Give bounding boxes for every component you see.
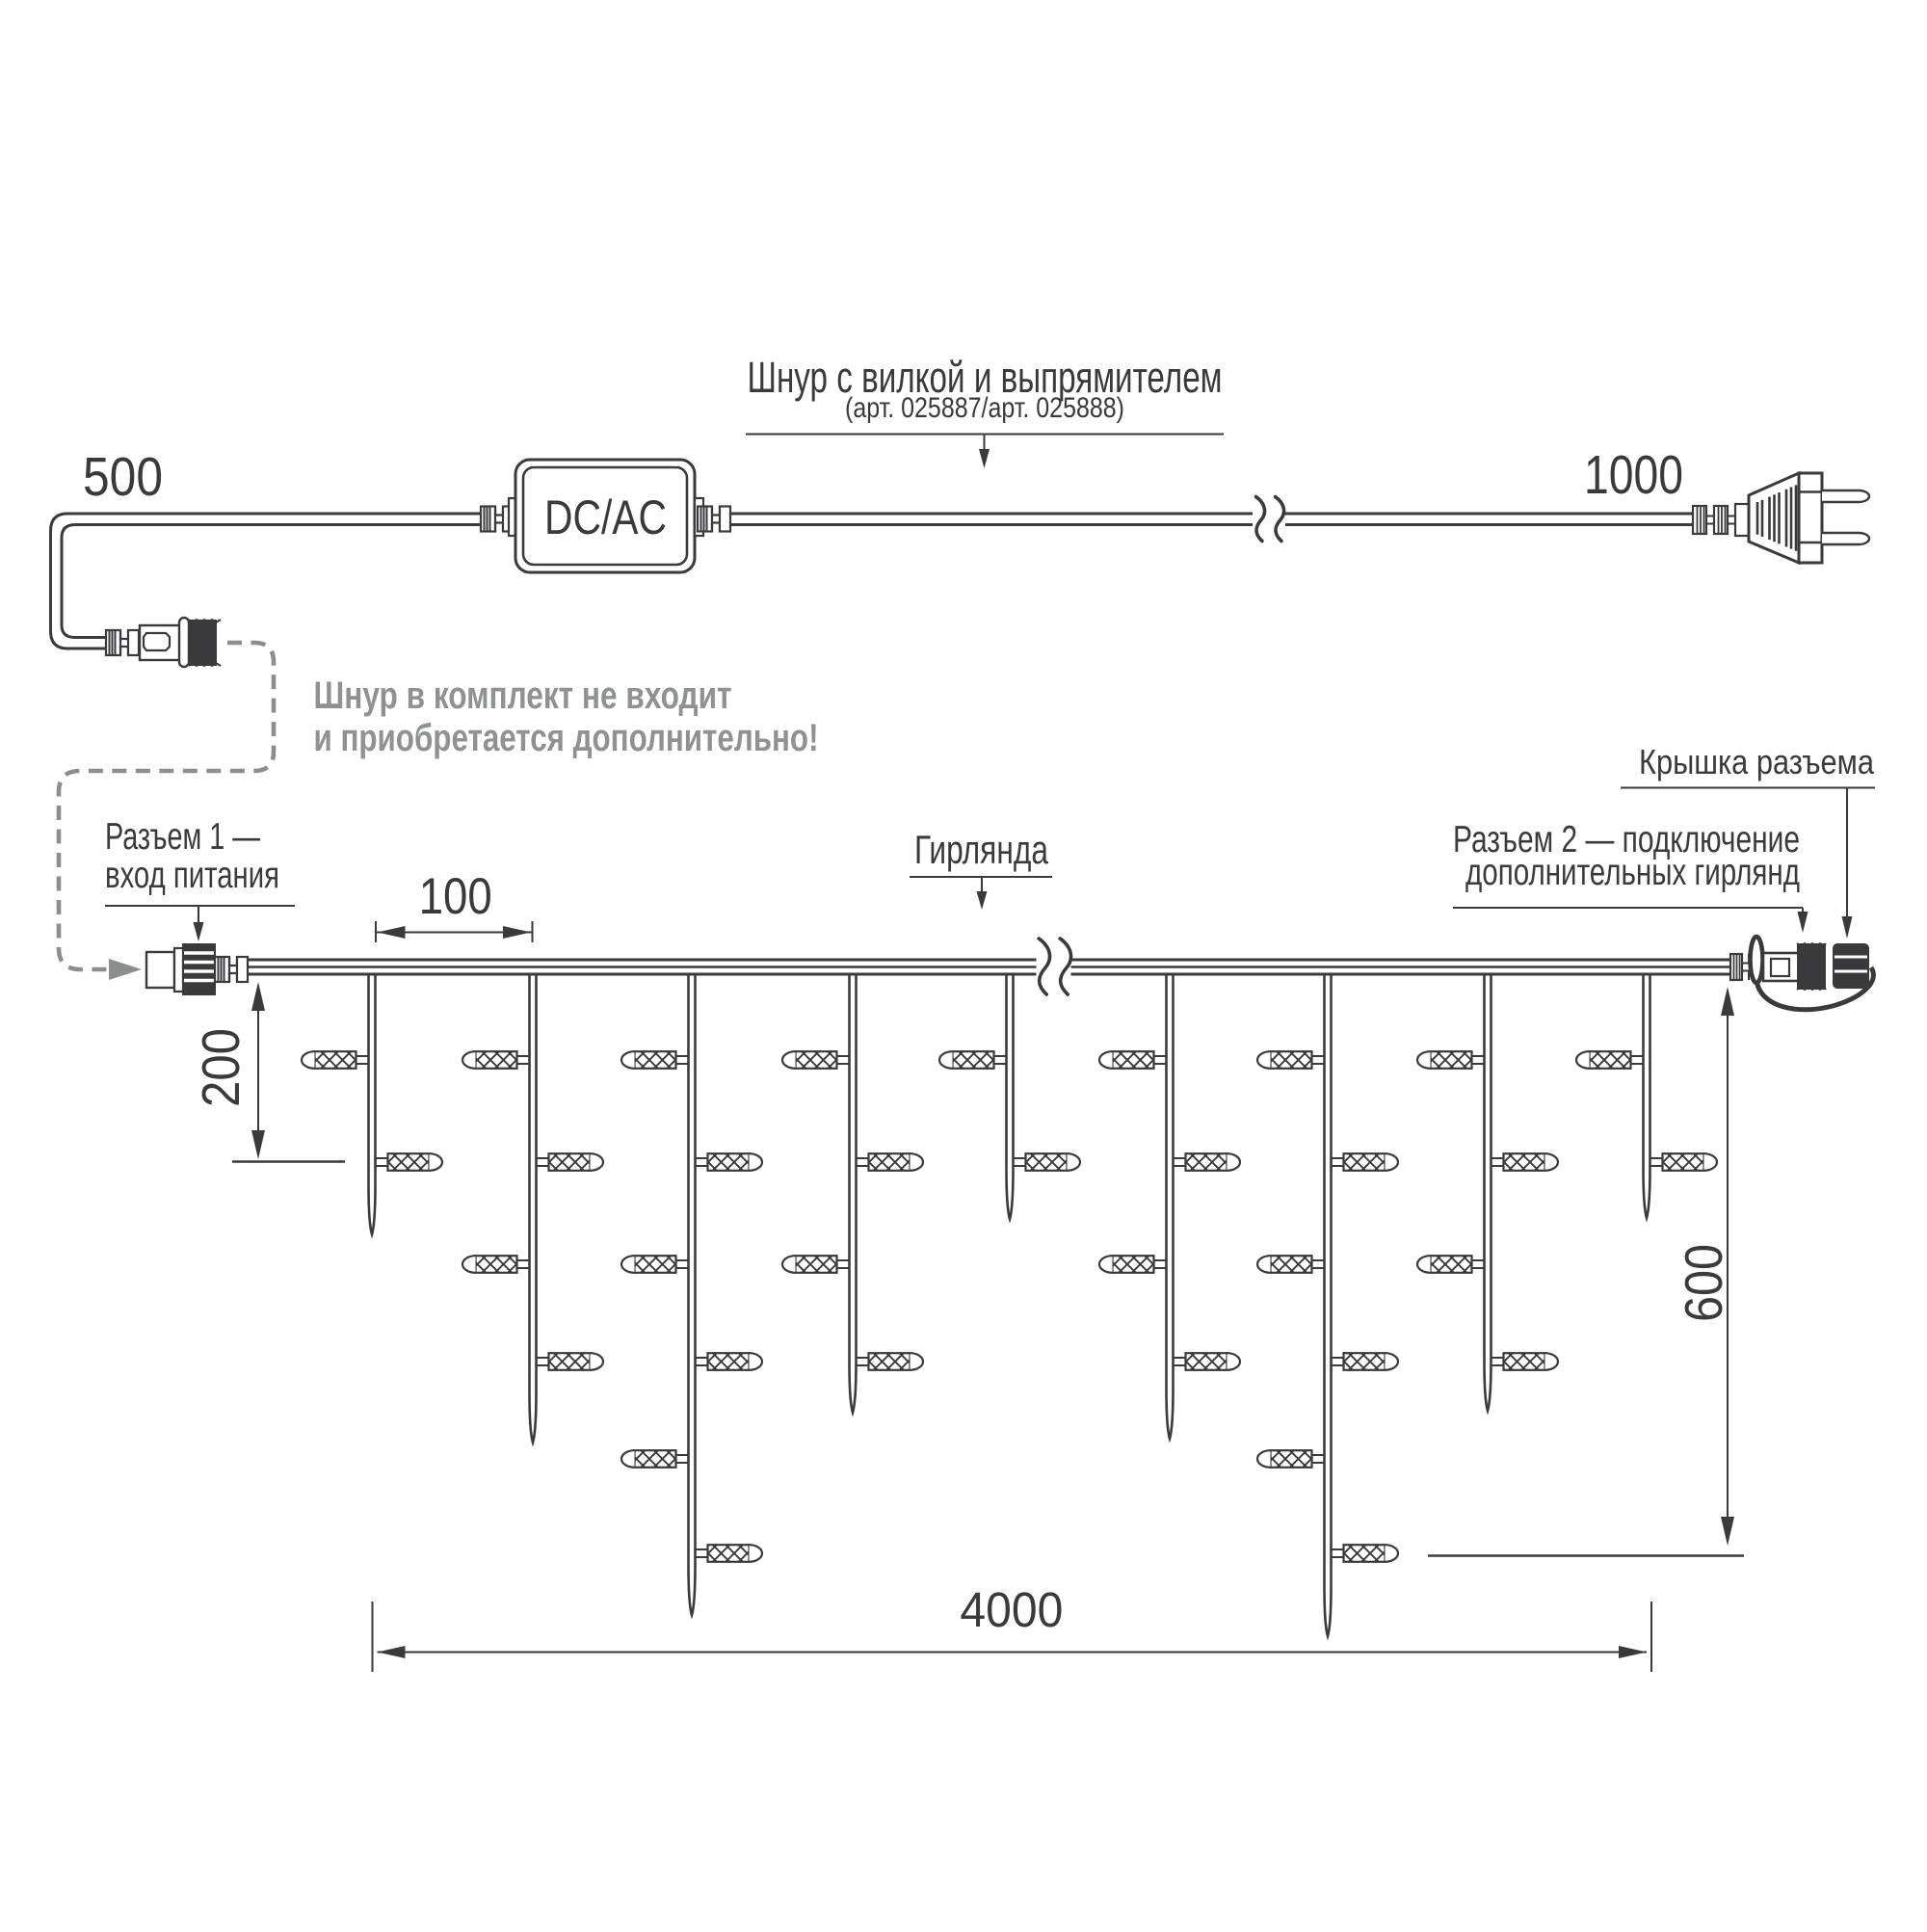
- svg-text:1000: 1000: [1584, 444, 1683, 506]
- svg-text:Гирлянда: Гирлянда: [914, 827, 1048, 872]
- svg-text:(арт. 025887/арт. 025888): (арт. 025887/арт. 025888): [845, 392, 1124, 424]
- svg-text:и приобретается дополнительно!: и приобретается дополнительно!: [314, 717, 819, 759]
- svg-text:Крышка разъема: Крышка разъема: [1639, 742, 1875, 781]
- svg-text:Шнур в комплект не входит: Шнур в комплект не входит: [314, 675, 732, 717]
- svg-text:дополнительных гирлянд: дополнительных гирлянд: [1465, 852, 1800, 893]
- svg-text:100: 100: [419, 868, 492, 925]
- svg-text:DC/AC: DC/AC: [544, 490, 667, 544]
- svg-text:Разъем 1 —: Разъем 1 —: [105, 816, 260, 858]
- svg-text:200: 200: [191, 1028, 251, 1107]
- svg-text:600: 600: [1674, 1244, 1733, 1322]
- svg-text:500: 500: [83, 446, 163, 508]
- svg-text:вход питания: вход питания: [105, 855, 279, 896]
- svg-text:4000: 4000: [960, 1582, 1063, 1637]
